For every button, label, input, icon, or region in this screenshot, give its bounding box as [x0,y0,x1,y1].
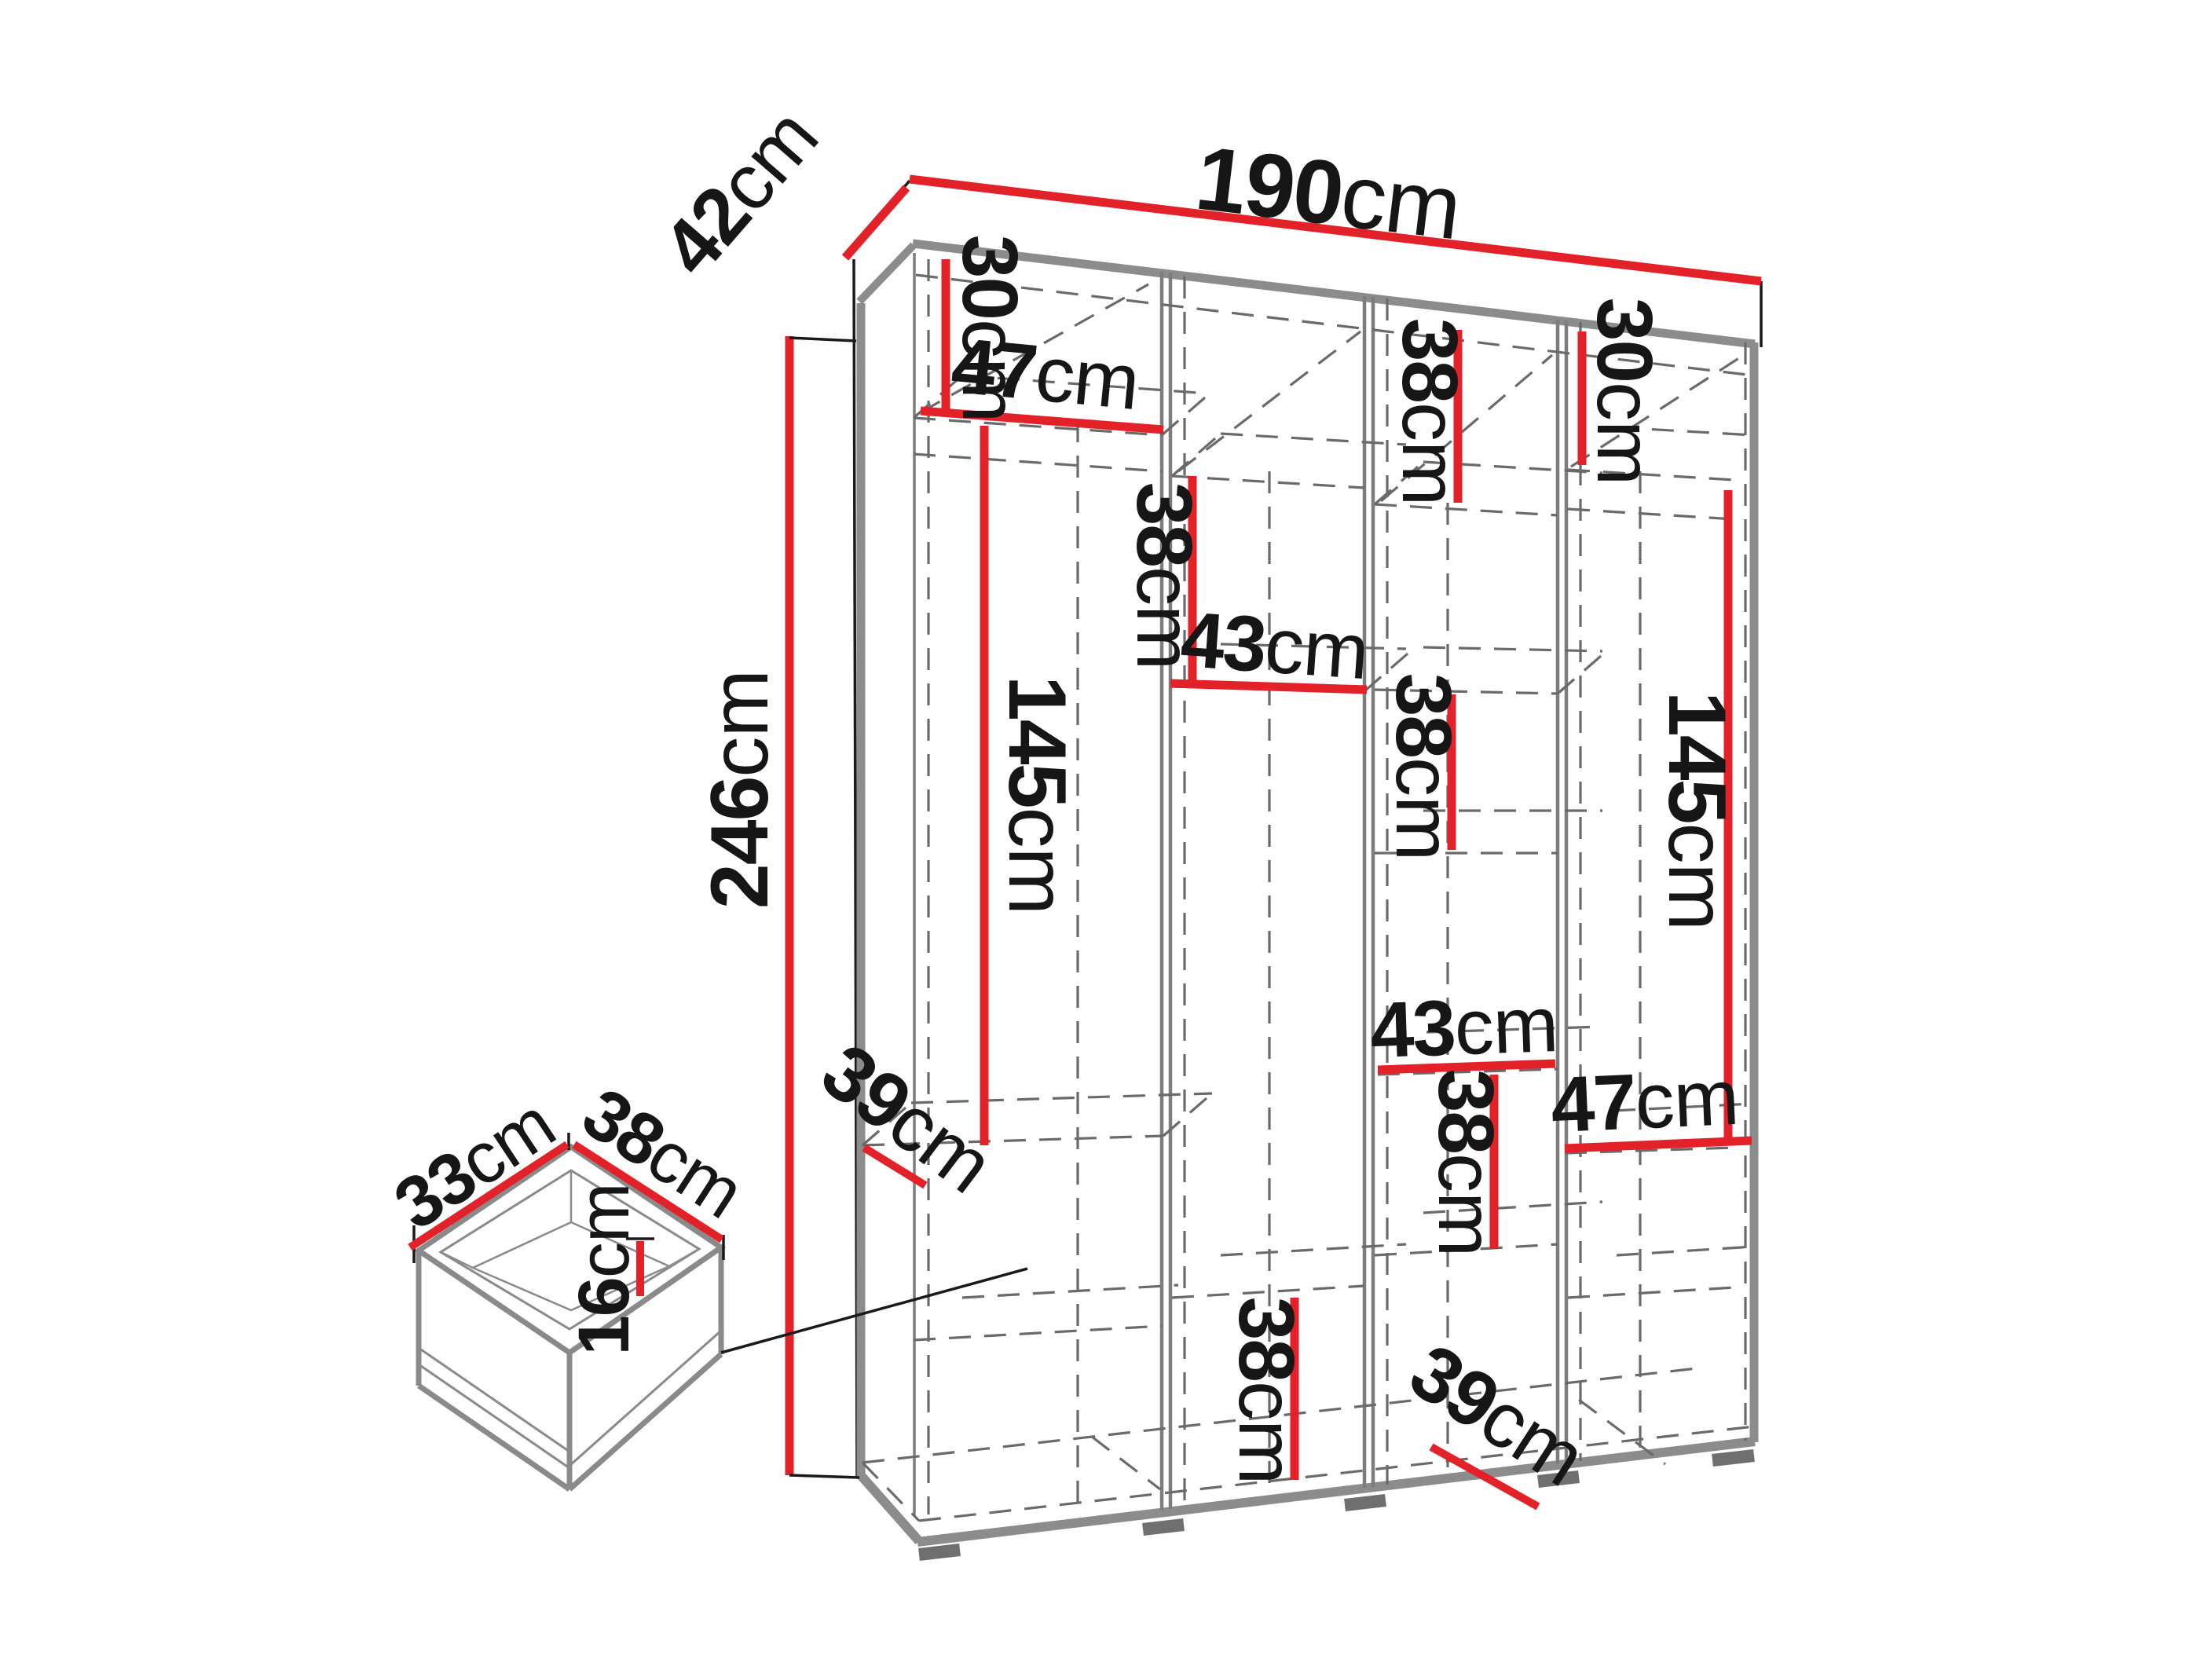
wardrobe-dimension-diagram: 190cm 42cm 246cm 30cm 47cm 145cm 39cm 38… [0,0,2212,1659]
dim-label-col3-mid: 38cm [1379,673,1467,861]
dash-shelf-back [1221,1244,1406,1255]
plinth-foot [1712,1456,1754,1460]
dash-shelf [1568,509,1734,519]
dim-label-width: 190cm [1191,128,1466,259]
dim-label-depth: 42cm [646,93,835,292]
dash-shelf [1568,1287,1734,1298]
dash-shelf [1375,504,1558,515]
dash-shelf [914,1326,1162,1340]
dim-label-col3-low: 38cm [1422,1069,1510,1257]
dim-label-col1-tall: 145cm [991,676,1082,914]
diagram-canvas: 190cm 42cm 246cm 30cm 47cm 145cm 39cm 38… [0,0,2212,1659]
dash-shelf-back [962,1285,1178,1298]
dim-label-col1-bottom: 39cm [806,1027,1009,1210]
bottom-edge [917,1441,1755,1542]
left-outer-black-edge [854,259,857,1477]
dash-floor-diagonal [1092,1437,1160,1489]
dim-label-col3-top: 38cm [1386,318,1474,506]
plinth-foot [1143,1525,1184,1529]
dash-shelf-back [1221,434,1406,445]
dimension-labels: 190cm 42cm 246cm 30cm 47cm 145cm 39cm 38… [646,93,1742,1503]
drawer-bottom-right [569,1354,721,1489]
plinth-foot [1345,1500,1386,1505]
drawer-front-seam [419,1364,569,1468]
dim-label-col3-shelf: 43cm [1369,980,1559,1075]
dim-label-drawer-height: 16cm [564,1184,644,1356]
top-left-bevel-edge [859,245,914,302]
dash-shelf [914,454,1162,471]
dash-shelf-side [1172,434,1221,476]
dim-label-col4-shelf: 47cm [1549,1053,1740,1149]
dash-floor-front [919,1426,1754,1521]
dim-label-height: 246cm [694,670,786,909]
extension-tick [789,338,856,341]
dim-label-col4-top: 30cm [1580,298,1668,485]
extension-tick [789,1475,859,1478]
drawer-leader-line [721,1269,1027,1353]
dim-label-col1-shelf: 47cm [948,321,1143,427]
dim-label-drawer-depth: 33cm [381,1083,569,1245]
plinth-foot [919,1550,960,1555]
dim-label-col2-bottom: 38cm [1222,1297,1310,1485]
dash-shelf-back [1423,647,1602,651]
dash-diagonal [1178,331,1361,471]
dash-shelf-back [1617,1247,1753,1255]
bottom-left-bevel-edge [859,1474,919,1541]
dim-line-depth-42 [845,188,906,258]
dim-label-col2-shelf: 43cm [1178,595,1372,696]
dim-label-col4-tall: 145cm [1651,691,1742,930]
